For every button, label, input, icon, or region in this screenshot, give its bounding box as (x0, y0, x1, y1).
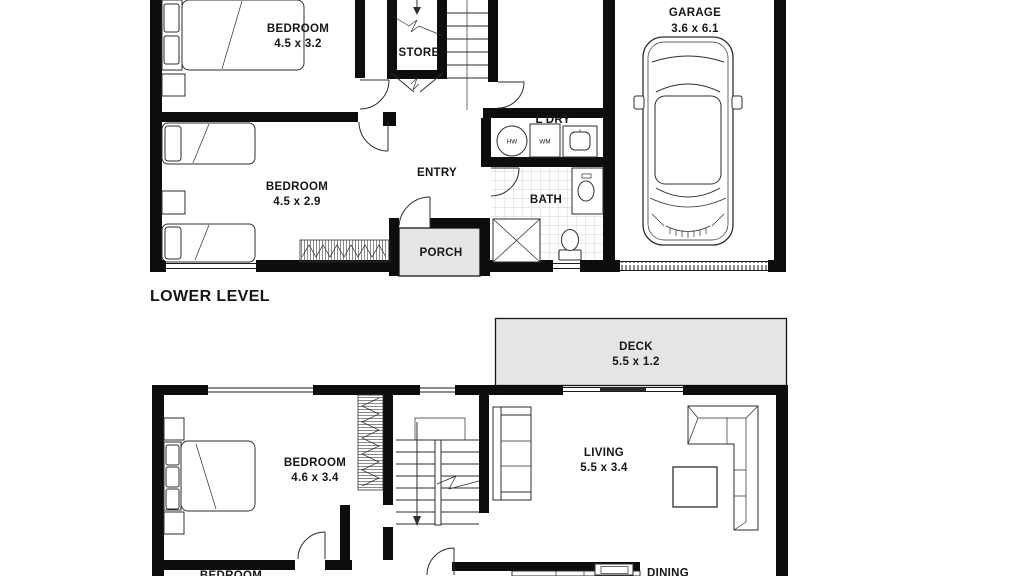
bedroom4-label: BEDROOM (200, 570, 262, 576)
bedside-table (164, 512, 184, 534)
car-mirror (732, 96, 742, 109)
lower-windows (208, 388, 683, 393)
bedroom2-label: BEDROOM (266, 181, 328, 193)
bedside-table (162, 74, 185, 96)
wardrobe-lower (358, 395, 383, 490)
vanity (572, 168, 603, 214)
floorplan-svg: HW WM (0, 0, 1024, 576)
staircase-upper (447, 0, 488, 110)
stair-direction-arrow (413, 7, 421, 15)
bedroom3-bed (164, 418, 255, 534)
bedroom3-dims: 4.6 x 3.4 (291, 472, 339, 484)
porch-label: PORCH (419, 247, 462, 259)
bath-label: BATH (530, 194, 562, 206)
dining-label: DINING (647, 568, 689, 576)
hot-water-label: HW (507, 139, 518, 146)
coffee-table (673, 467, 717, 507)
bedroom3-label: BEDROOM (284, 457, 346, 469)
deck-label: DECK (619, 341, 653, 353)
staircase-lower (396, 418, 479, 526)
door-arcs-lower (298, 532, 454, 575)
living-label: LIVING (584, 447, 624, 459)
bedroom1-label: BEDROOM (267, 23, 329, 35)
bedside-table (164, 418, 184, 440)
washing-machine-label: WM (539, 139, 550, 146)
garage-dims: 3.6 x 6.1 (671, 23, 719, 35)
garage-label: GARAGE (669, 7, 721, 19)
living-dims: 5.5 x 3.4 (580, 462, 628, 474)
entry-label: ENTRY (417, 167, 457, 179)
wardrobe-upper (300, 240, 390, 262)
laundry-fixtures: HW WM (497, 124, 597, 157)
bedroom1-dims: 4.5 x 3.2 (274, 38, 321, 50)
deck-dims: 5.5 x 1.2 (612, 356, 659, 368)
upper-level-plan: HW WM (150, 0, 786, 276)
lower-level-plan: DECK 5.5 x 1.2 BEDROOM 4.6 x 3.4 LIVING … (152, 319, 788, 576)
bedroom2-beds (162, 123, 255, 262)
bedroom2-dims: 4.5 x 2.9 (273, 196, 320, 208)
garage-car (634, 37, 742, 245)
level-label: LOWER LEVEL (150, 288, 270, 305)
floorplan-canvas: HW WM (0, 0, 1024, 576)
laundry-label: L'DRY (535, 114, 570, 126)
sliding-door-panel (600, 388, 646, 392)
sofa (493, 407, 531, 500)
garage-door (620, 260, 768, 272)
store-label: STORE (399, 47, 440, 59)
shower (493, 219, 540, 262)
car-mirror (634, 96, 644, 109)
bedside-table (162, 191, 185, 214)
